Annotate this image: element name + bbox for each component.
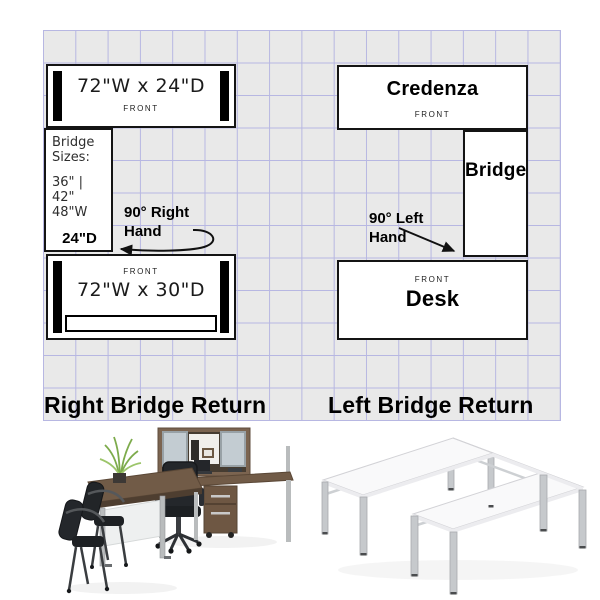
credenza-dimensions: 72"W x 24"D	[48, 75, 234, 97]
left-layout-desk-box: FRONT Desk	[337, 260, 528, 340]
pedestal-illustration	[204, 486, 237, 538]
annotation-line: Hand	[124, 223, 189, 242]
desk-label: Desk	[339, 286, 526, 312]
plant-illustration	[100, 437, 141, 474]
left-layout-bridge-box: Bridge	[463, 130, 528, 257]
annotation-line: 90° Right	[124, 204, 189, 223]
front-label: FRONT	[48, 104, 234, 113]
right-layout-desk-box: FRONT 72"W x 30"D	[46, 254, 236, 340]
annotation-line: 90° Left	[369, 210, 423, 229]
furniture-layout-diagram: 72"W x 24"D FRONT Bridge Sizes: 36" | 42…	[0, 0, 600, 600]
planter-illustration	[113, 473, 126, 483]
right-bridge-return-title: Right Bridge Return	[44, 392, 266, 419]
left-layout-credenza-box: Credenza FRONT	[337, 65, 528, 130]
left-bridge-return-title: Left Bridge Return	[328, 392, 534, 419]
bridge-depth-label: 24"D	[52, 230, 107, 247]
end-panel-icon	[220, 71, 229, 121]
end-panel-icon	[220, 261, 229, 333]
modesty-panel	[65, 315, 217, 332]
end-panel-icon	[53, 261, 62, 333]
right-hand-annotation: 90° Right Hand	[124, 204, 189, 242]
desk-frame-photo	[308, 420, 593, 595]
front-label: FRONT	[48, 267, 234, 276]
annotation-line: Hand	[369, 229, 423, 248]
bridge-label: Bridge	[465, 160, 526, 182]
front-label: FRONT	[339, 275, 526, 284]
bridge-size-options-1: 36" | 42"	[52, 175, 107, 206]
bridge-sizes-text: Bridge Sizes: 36" | 42" 48"W	[52, 135, 107, 221]
front-label: FRONT	[339, 110, 526, 119]
right-layout-credenza-box: 72"W x 24"D FRONT	[46, 64, 236, 128]
credenza-label: Credenza	[339, 78, 526, 101]
left-hand-annotation: 90° Left Hand	[369, 210, 423, 248]
bridge-sizes-heading: Bridge Sizes:	[52, 135, 107, 166]
bridge-size-options-2: 48"W	[52, 205, 107, 220]
desk-dimensions: 72"W x 30"D	[48, 279, 234, 301]
desk-set-photo	[42, 422, 302, 600]
end-panel-icon	[53, 71, 62, 121]
bridge-sizes-box: Bridge Sizes: 36" | 42" 48"W 24"D	[44, 128, 113, 252]
